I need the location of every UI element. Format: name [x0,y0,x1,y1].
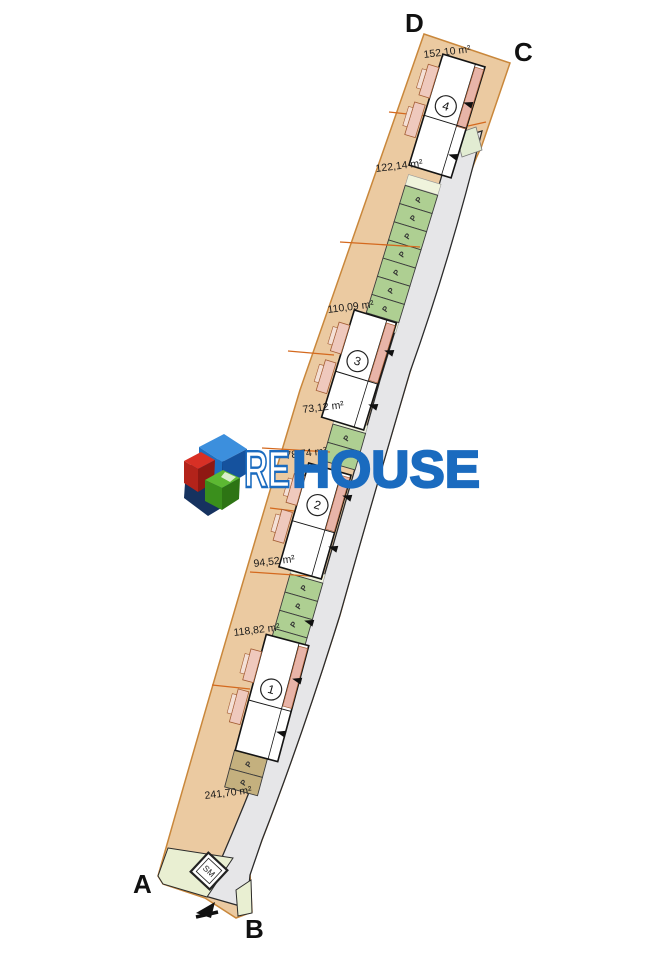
watermark-house-text: HOUSE [292,441,480,499]
corner-label-d: D [405,8,424,38]
site-plan-svg: P P P P P P P P P P P P P P P [0,0,656,960]
site-plan-page: P P P P P P P P P P P P P P P [0,0,656,960]
corner-label-b: B [245,914,264,944]
corner-label-c: C [514,37,533,67]
watermark-re-text: RE [244,441,290,499]
corner-label-a: A [133,869,152,899]
rehouse-logo-cubes-icon [184,434,247,516]
